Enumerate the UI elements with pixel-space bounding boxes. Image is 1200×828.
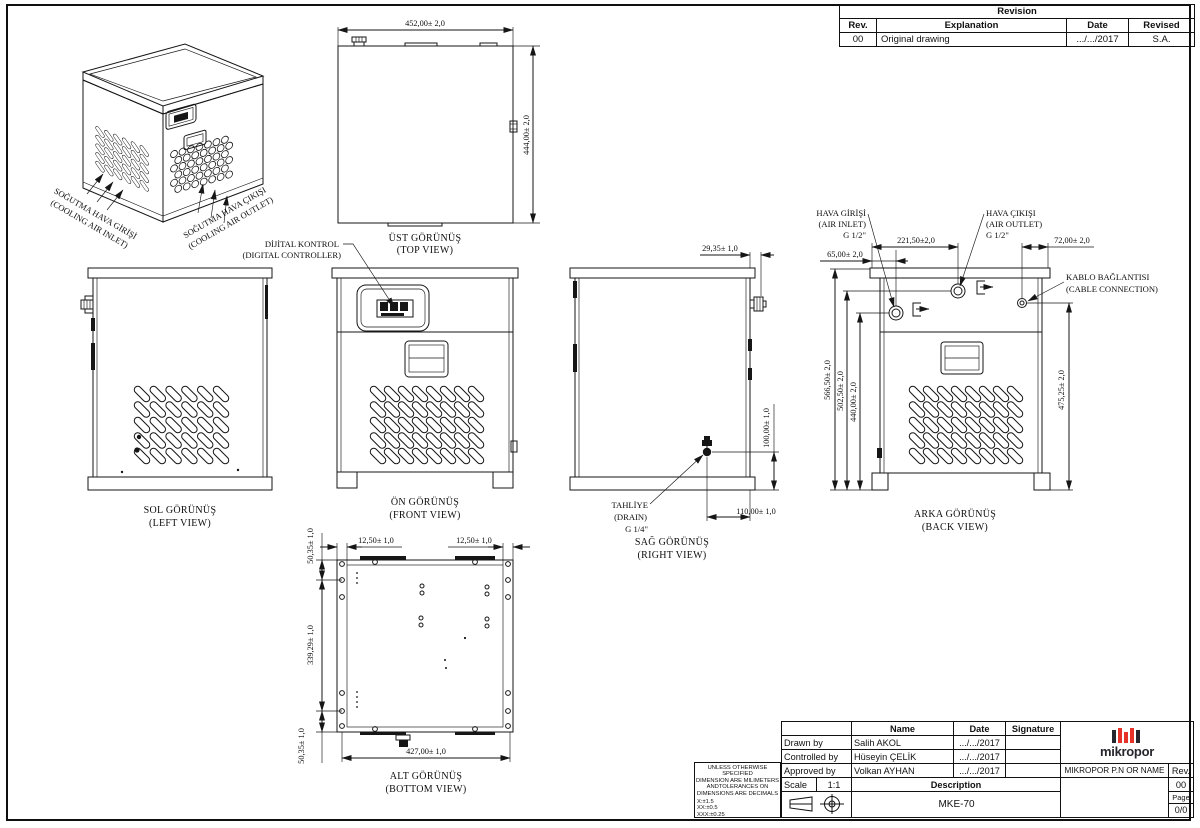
tolerance-line3: ANDTOLERANCES ON (695, 784, 780, 790)
tolerance-xxx: XXX:±0.25 (697, 812, 780, 818)
dim-back-outlet-h: 502,50± 2,0 (836, 371, 845, 411)
drain-callout-en: (DRAIN) (614, 512, 647, 522)
approved-by-date: .../.../2017 (954, 764, 1006, 778)
drawn-by-signature (1006, 736, 1061, 750)
right-view: 29,35± 1,0 100,00± 1,0 110,00± 1,0 TAHLİ… (570, 244, 779, 561)
controlled-by-signature (1006, 750, 1061, 764)
revision-table: Revision Rev. Explanation Date Revised 0… (839, 4, 1195, 47)
mikropor-pn-label: MIKROPOR P.N OR NAME (1061, 764, 1169, 778)
mikropor-logo-text: mikropor (1061, 746, 1193, 758)
left-view-gland-icon (81, 296, 93, 313)
page-value: 0/0 (1169, 803, 1193, 817)
back-view: HAVA GİRİŞİ (AIR INLET) G 1/2" HAVA ÇIKI… (816, 208, 1158, 533)
dim-right-gland: 29,35± 1,0 (702, 244, 738, 253)
scale-label: Scale (782, 778, 817, 792)
tolerance-line4: DIMENSIONS ARE DECIMALS (695, 791, 780, 797)
revision-explanation-value: Original drawing (877, 33, 1067, 47)
air-inlet-callout: HAVA GİRİŞİ (816, 208, 866, 218)
air-outlet-callout-en: (AIR OUTLET) (986, 219, 1042, 229)
air-inlet-callout-size: G 1/2" (843, 230, 866, 240)
dim-back-inlet-h: 440,00± 2,0 (849, 382, 858, 422)
iso-controller (166, 104, 196, 130)
isometric-view: SOĞUTMA HAVA GİRİŞİ (COOLING AIR INLET) … (46, 44, 274, 252)
approved-by-name: Volkan AYHAN (852, 764, 954, 778)
back-handle (941, 342, 983, 374)
top-view: 452,00± 2,0 444,00± 2,0 ÜST GÖRÜNÜŞ (TOP… (338, 19, 540, 256)
cable-gland-icon (352, 37, 366, 46)
top-view-title: ÜST GÖRÜNÜŞ (389, 232, 462, 244)
tolerance-line1: UNLESS OTHERWISE SPECIFIED (695, 765, 780, 778)
front-handle (405, 341, 448, 377)
approved-by-label: Approved by (782, 764, 852, 778)
revision-col-explanation: Explanation (877, 19, 1067, 33)
dim-bottom-top-offset: 50,35± 1,0 (306, 528, 315, 564)
iso-round-grille (171, 134, 233, 194)
dim-back-total-h: 566,50± 2,0 (823, 360, 832, 400)
right-view-gland-icon (750, 297, 766, 311)
revision-row: 00 Original drawing .../.../2017 S.A. (840, 33, 1195, 47)
scale-value: 1:1 (817, 778, 852, 792)
back-view-subtitle: (BACK VIEW) (922, 522, 988, 533)
drawn-by-date: .../.../2017 (954, 736, 1006, 750)
digital-control-callout: DİJİTAL KONTROL (265, 239, 339, 249)
dim-bottom-rail-left: 12,50± 1,0 (358, 536, 394, 545)
air-outlet-port-icon (951, 284, 965, 298)
left-view-grille (133, 385, 230, 465)
cable-connection-callout: KABLO BAĞLANTISI (1066, 272, 1149, 282)
description-label: Description (852, 778, 1061, 792)
left-view: SOL GÖRÜNÜŞ (LEFT VIEW) (81, 268, 272, 529)
titleblock-col-signature: Signature (1006, 722, 1061, 736)
dim-back-outlet-x: 221,50±2,0 (897, 236, 935, 245)
drain-valve-icon (702, 436, 712, 456)
controlled-by-label: Controlled by (782, 750, 852, 764)
dim-drain-offset: 110,00± 1,0 (736, 507, 776, 516)
drain-callout: TAHLİYE (611, 500, 648, 510)
page-cell: Page 0/0 (1169, 792, 1194, 818)
front-view-subtitle: (FRONT VIEW) (389, 510, 460, 521)
iso-louver-grille (95, 125, 150, 193)
digital-control-callout-en: (DIGITAL CONTROLLER) (242, 250, 341, 260)
tolerance-note: UNLESS OTHERWISE SPECIFIED DIMENSION ARE… (694, 762, 781, 818)
air-inlet-flow-icon (913, 303, 929, 316)
cable-connection-icon (1018, 299, 1027, 308)
right-view-title: SAĞ GÖRÜNÜŞ (635, 536, 709, 548)
bottom-view-subtitle: (BOTTOM VIEW) (385, 784, 466, 795)
mikropor-logo: mikropor (1061, 722, 1194, 764)
air-outlet-callout-size: G 1/2" (986, 230, 1009, 240)
air-outlet-callout: HAVA ÇIKIŞI (986, 208, 1036, 218)
dim-bottom-bottom-offset: 50,35± 1,0 (297, 728, 306, 764)
front-view: DİJİTAL KONTROL (DIGITAL CONTROLLER) ÖN … (242, 239, 518, 521)
dim-bottom-slot-span: 339,29± 1,0 (306, 625, 315, 665)
engineering-drawing: SOĞUTMA HAVA GİRİŞİ (COOLING AIR INLET) … (0, 0, 1200, 828)
front-view-title: ÖN GÖRÜNÜŞ (391, 496, 459, 508)
digital-controller-panel (357, 285, 429, 331)
drain-callout-size: G 1/4" (625, 524, 648, 534)
dim-drain-height: 100,00± 1,0 (762, 408, 771, 448)
dim-back-cable-x: 72,00± 2,0 (1054, 236, 1090, 245)
revision-date-value: .../.../2017 (1067, 33, 1129, 47)
revision-revised-value: S.A. (1129, 33, 1195, 47)
revision-title: Revision (840, 5, 1195, 19)
pn-value-cell (1061, 778, 1169, 818)
controlled-by-name: Hüseyin ÇELİK (852, 750, 954, 764)
dim-top-depth: 444,00± 2,0 (522, 115, 531, 155)
drawing-sheet: SOĞUTMA HAVA GİRİŞİ (COOLING AIR INLET) … (0, 0, 1200, 828)
rev-value: 00 (1169, 778, 1194, 792)
drawn-by-label: Drawn by (782, 736, 852, 750)
third-angle-projection-icon (786, 794, 848, 814)
projection-symbol (782, 792, 852, 818)
description-value: MKE-70 (852, 792, 1061, 818)
air-outlet-flow-icon (977, 281, 993, 294)
drawn-by-name: Salih AKOL (852, 736, 954, 750)
mounting-holes (340, 560, 511, 732)
bottom-view: 12,50± 1,0 12,50± 1,0 50,35± 1,0 339,29±… (297, 528, 530, 795)
back-view-title: ARKA GÖRÜNÜŞ (914, 508, 996, 520)
rev-label: Rev. (1169, 764, 1194, 778)
revision-col-date: Date (1067, 19, 1129, 33)
revision-rev-value: 00 (840, 33, 877, 47)
right-view-subtitle: (RIGHT VIEW) (637, 550, 706, 561)
revision-col-rev: Rev. (840, 19, 877, 33)
titleblock-col-date: Date (954, 722, 1006, 736)
air-inlet-callout-en: (AIR INLET) (819, 219, 867, 229)
revision-col-revised: Revised (1129, 19, 1195, 33)
page-label: Page (1169, 792, 1193, 803)
bottom-gland-icon (396, 735, 410, 747)
controlled-by-date: .../.../2017 (954, 750, 1006, 764)
left-view-subtitle: (LEFT VIEW) (149, 518, 211, 529)
bottom-view-title: ALT GÖRÜNÜŞ (390, 770, 462, 782)
approved-by-signature (1006, 764, 1061, 778)
cable-connection-callout-en: (CABLE CONNECTION) (1066, 284, 1158, 294)
dim-top-width: 452,00± 2,0 (405, 19, 445, 28)
dim-back-inlet-x: 65,00± 2,0 (827, 250, 863, 259)
front-view-grille (369, 385, 485, 465)
title-block: Name Date Signature mikropor Drawn by Sa… (781, 721, 1194, 818)
top-view-subtitle: (TOP VIEW) (397, 245, 453, 256)
dim-bottom-rail-right: 12,50± 1,0 (456, 536, 492, 545)
titleblock-col-name: Name (852, 722, 954, 736)
dim-back-cable-h: 475,25± 2,0 (1057, 370, 1066, 410)
air-inlet-port-icon (889, 306, 903, 320)
dim-bottom-width: 427,00± 1,0 (406, 747, 446, 756)
mikropor-logo-icon (1110, 728, 1144, 744)
back-view-grille (908, 385, 1024, 465)
left-view-title: SOL GÖRÜNÜŞ (144, 504, 217, 516)
